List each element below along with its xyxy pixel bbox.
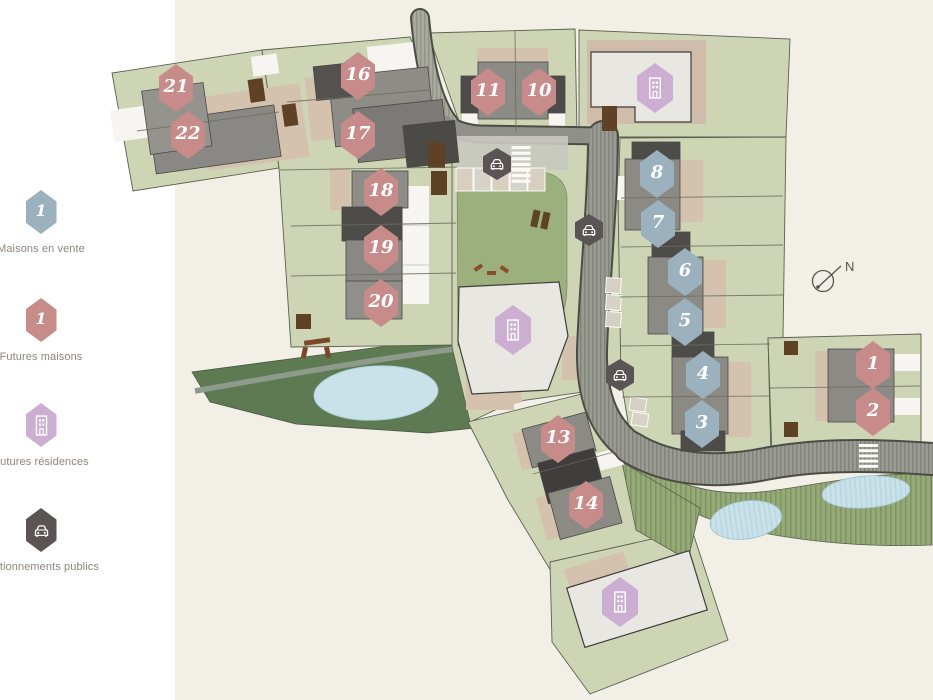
lot-number: 4 bbox=[697, 365, 710, 383]
lot-number: 18 bbox=[368, 182, 393, 200]
legend-item-stationnements: Stationnements publics bbox=[0, 508, 101, 574]
lot-number: 11 bbox=[475, 82, 500, 100]
car-icon bbox=[612, 368, 628, 382]
sale-hex-icon: 1 bbox=[26, 190, 57, 234]
legend-label: Maisons en vente bbox=[0, 243, 85, 256]
legend: 1 Maisons en vente 1 Futures maisons Fut… bbox=[0, 0, 175, 700]
lot-number: 14 bbox=[573, 495, 598, 513]
legend-badge: 1 bbox=[35, 203, 46, 219]
building-icon bbox=[505, 319, 521, 341]
residence-hex-icon bbox=[26, 403, 57, 447]
car-icon bbox=[489, 157, 505, 171]
lot-number: 17 bbox=[345, 125, 370, 143]
legend-item-maisons-en-vente: 1 Maisons en vente bbox=[0, 190, 101, 256]
building-icon bbox=[34, 415, 49, 436]
lot-number: 19 bbox=[368, 239, 393, 257]
legend-label: Stationnements publics bbox=[0, 561, 99, 574]
lot-number: 5 bbox=[679, 312, 692, 330]
lot-number: 7 bbox=[652, 214, 665, 232]
future-house-hex-icon: 1 bbox=[26, 298, 57, 342]
legend-label: Futures résidences bbox=[0, 456, 89, 469]
lot-number: 16 bbox=[345, 66, 370, 84]
lot-number: 3 bbox=[696, 414, 709, 432]
lot-number: 6 bbox=[679, 262, 692, 280]
lot-number: 1 bbox=[867, 355, 880, 373]
parking-hex-icon bbox=[26, 508, 57, 552]
north-label: N bbox=[845, 259, 854, 274]
lot-number: 10 bbox=[526, 82, 551, 100]
car-icon bbox=[33, 523, 50, 538]
site-plan-app: N 1 Maisons en vente 1 Futures maisons F… bbox=[0, 0, 933, 700]
lot-number: 22 bbox=[175, 125, 200, 143]
legend-item-futures-residences: Futures résidences bbox=[0, 403, 101, 469]
lot-number: 2 bbox=[867, 402, 880, 420]
building-icon bbox=[647, 77, 663, 99]
lot-number: 13 bbox=[545, 429, 570, 447]
car-icon bbox=[581, 223, 597, 237]
lot-number: 20 bbox=[368, 293, 393, 311]
legend-item-futures-maisons: 1 Futures maisons bbox=[0, 298, 101, 364]
legend-badge: 1 bbox=[35, 311, 46, 327]
legend-label: Futures maisons bbox=[0, 351, 82, 364]
building-icon bbox=[612, 591, 628, 613]
lot-number: 8 bbox=[651, 164, 664, 182]
